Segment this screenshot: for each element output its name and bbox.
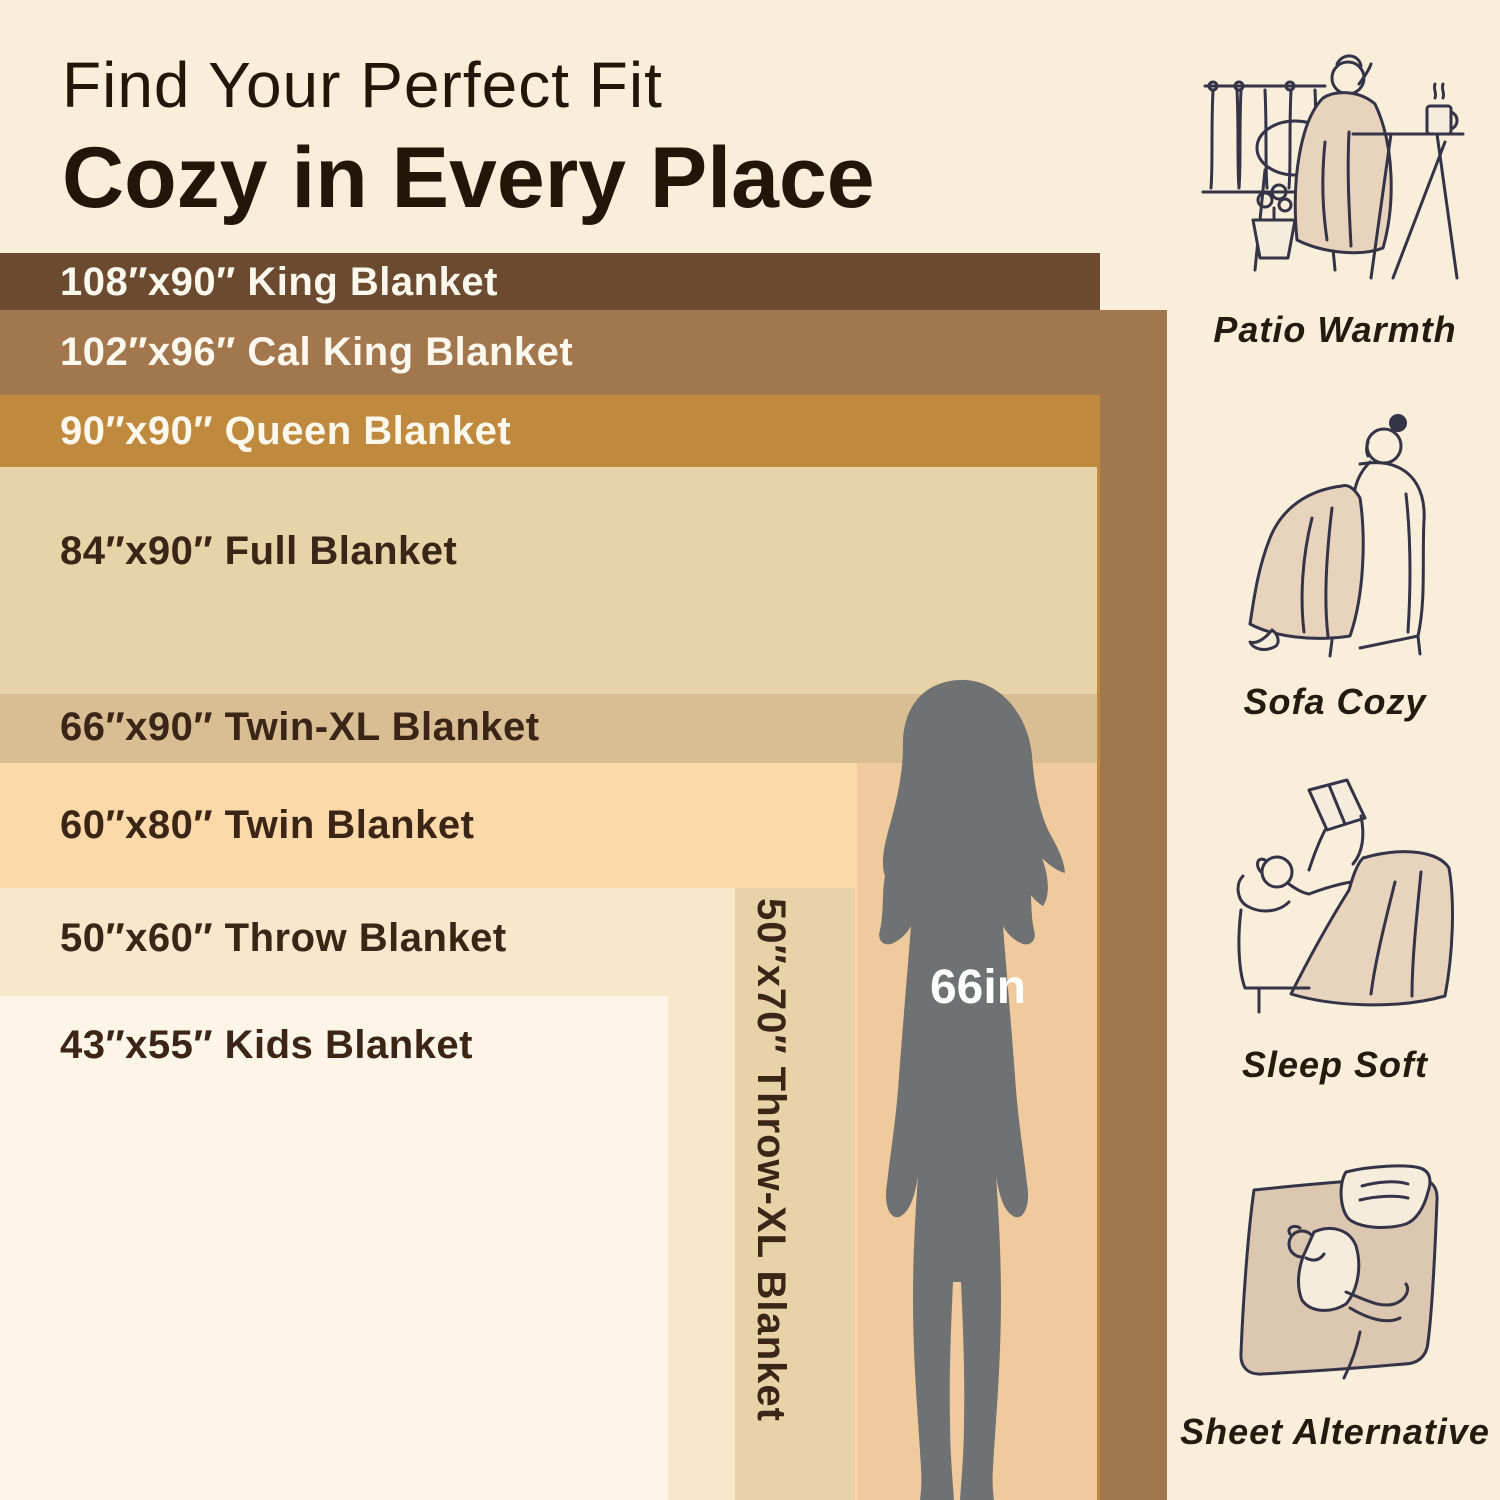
title-line-1: Find Your Perfect Fit [62, 46, 875, 124]
patio-scene-illustration [1170, 42, 1500, 294]
sheet-scene-illustration [1170, 1162, 1500, 1394]
size-label-kids: 43″x55″ Kids Blanket [60, 1021, 473, 1069]
size-label-full: 84″x90″ Full Blanket [60, 527, 457, 575]
blanket-size-infographic: Find Your Perfect Fit Cozy in Every Plac… [0, 0, 1500, 1500]
figure-height-label: 66in [908, 960, 1048, 1015]
size-label-twin: 60″x80″ Twin Blanket [60, 801, 474, 849]
person-silhouette [845, 678, 1095, 1500]
title-line-2: Cozy in Every Place [62, 130, 875, 226]
size-label-king: 108″x90″ King Blanket [60, 258, 498, 306]
size-label-queen: 90″x90″ Queen Blanket [60, 407, 511, 455]
size-band-king: 108″x90″ King Blanket [0, 253, 1100, 310]
sheet-caption: Sheet Alternative [1170, 1410, 1500, 1454]
sleep-caption: Sleep Soft [1170, 1043, 1500, 1087]
page-title: Find Your Perfect Fit Cozy in Every Plac… [62, 46, 875, 226]
size-label-cal-king: 102″x96″ Cal King Blanket [60, 328, 573, 376]
size-label-throw: 50″x60″ Throw Blanket [60, 914, 507, 962]
size-label-twin-xl: 66″x90″ Twin-XL Blanket [60, 703, 540, 751]
sofa-scene-illustration [1170, 398, 1500, 660]
sofa-caption: Sofa Cozy [1170, 680, 1500, 724]
sleep-scene-illustration [1170, 772, 1500, 1022]
size-band-kids: 43″x55″ Kids Blanket [0, 996, 668, 1500]
patio-caption: Patio Warmth [1170, 308, 1500, 352]
size-label-throw-xl: 50″x70″ Throw-XL Blanket [742, 898, 800, 1458]
